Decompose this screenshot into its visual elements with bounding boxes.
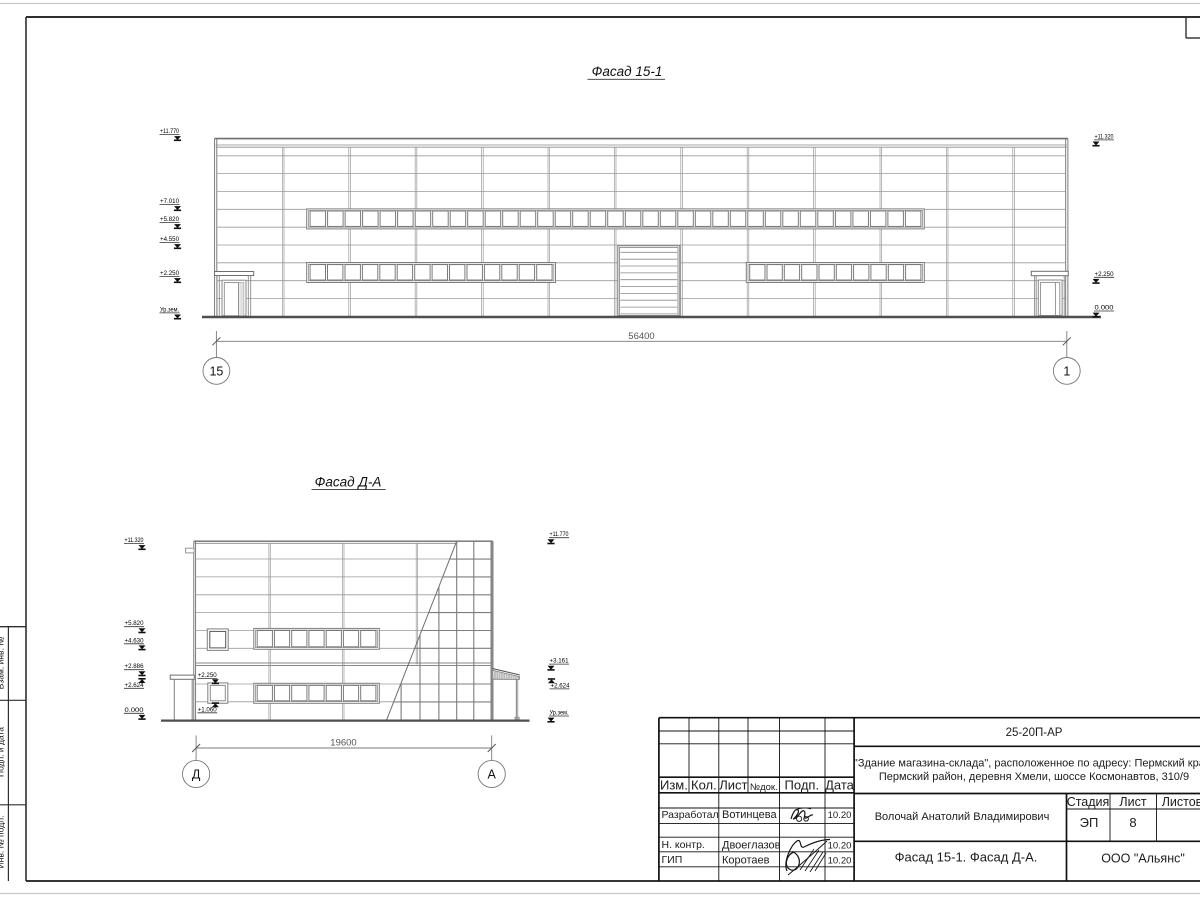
svg-text:+5.820: +5.820 (125, 620, 144, 627)
svg-text:Пермский район, деревня Хмели,: Пермский район, деревня Хмели, шоссе Кос… (879, 771, 1189, 783)
svg-text:0.000: 0.000 (125, 707, 144, 714)
svg-text:ЭП: ЭП (1080, 815, 1099, 830)
svg-text:+2.886: +2.886 (125, 663, 144, 670)
svg-text:Вотинцева: Вотинцева (722, 809, 777, 821)
svg-text:Лист: Лист (1119, 795, 1146, 809)
svg-text:+3.161: +3.161 (550, 658, 569, 665)
svg-text:+2.250: +2.250 (198, 672, 217, 679)
svg-text:Фасад 15-1. Фасад Д-А.: Фасад 15-1. Фасад Д-А. (895, 850, 1038, 865)
svg-text:+11.770: +11.770 (160, 128, 179, 135)
svg-text:Ур.зем.: Ур.зем. (160, 306, 179, 313)
svg-text:56400: 56400 (628, 331, 654, 342)
svg-text:10.20: 10.20 (828, 841, 852, 852)
svg-text:Инв. № подл.: Инв. № подл. (0, 816, 6, 869)
svg-text:+2.250: +2.250 (1095, 271, 1114, 278)
svg-text:Н. контр.: Н. контр. (662, 839, 705, 851)
svg-text:ГИП: ГИП (662, 854, 683, 866)
svg-text:10.20: 10.20 (828, 856, 852, 867)
svg-text:25-20П-АР: 25-20П-АР (1006, 727, 1063, 739)
svg-text:1: 1 (1063, 364, 1070, 378)
svg-text:Взам. инв. №: Взам. инв. № (0, 637, 6, 690)
svg-text:Изм.: Изм. (660, 778, 688, 793)
svg-text:8: 8 (1129, 815, 1136, 830)
svg-text:Дата: Дата (825, 778, 855, 793)
svg-text:10.20: 10.20 (828, 810, 852, 821)
svg-text:+4.630: +4.630 (125, 637, 144, 644)
svg-text:Стадия: Стадия (1067, 795, 1110, 809)
svg-text:Подп. и дата: Подп. и дата (0, 727, 6, 777)
svg-text:Разработал: Разработал (662, 809, 719, 821)
svg-text:Фасад 15-1: Фасад 15-1 (592, 64, 663, 79)
svg-text:+5.820: +5.820 (160, 216, 179, 223)
svg-text:Лист: Лист (719, 778, 747, 793)
svg-text:ООО "Альянс": ООО "Альянс" (1101, 852, 1185, 866)
svg-text:+11.770: +11.770 (550, 531, 569, 538)
svg-text:Листов: Листов (1162, 795, 1200, 809)
svg-text:Подп.: Подп. (785, 778, 820, 793)
svg-text:Волочай Анатолий Владимирович: Волочай Анатолий Владимирович (875, 811, 1050, 823)
svg-text:Кол.: Кол. (691, 778, 717, 793)
svg-text:19600: 19600 (330, 738, 356, 749)
svg-text:+4.550: +4.550 (160, 236, 179, 243)
svg-text:"Здание магазина-склада", расп: "Здание магазина-склада", расположенное … (854, 758, 1200, 770)
svg-text:+2.250: +2.250 (160, 270, 179, 277)
svg-text:15: 15 (209, 364, 223, 378)
svg-text:Фасад Д-А: Фасад Д-А (315, 475, 382, 490)
svg-text:Коротаев: Коротаев (722, 855, 770, 867)
svg-text:+7.010: +7.010 (160, 198, 179, 205)
svg-text:0.000: 0.000 (1095, 305, 1114, 312)
svg-text:Д: Д (192, 768, 201, 782)
svg-text:Ур.зем.: Ур.зем. (550, 710, 569, 717)
svg-text:+11.320: +11.320 (1095, 133, 1114, 140)
svg-text:Двоеглазов: Двоеглазов (722, 840, 781, 852)
svg-text:+1.060: +1.060 (198, 706, 217, 713)
svg-text:А: А (488, 768, 497, 782)
svg-text:+11.320: +11.320 (125, 537, 144, 544)
svg-text:№док.: №док. (750, 782, 778, 793)
